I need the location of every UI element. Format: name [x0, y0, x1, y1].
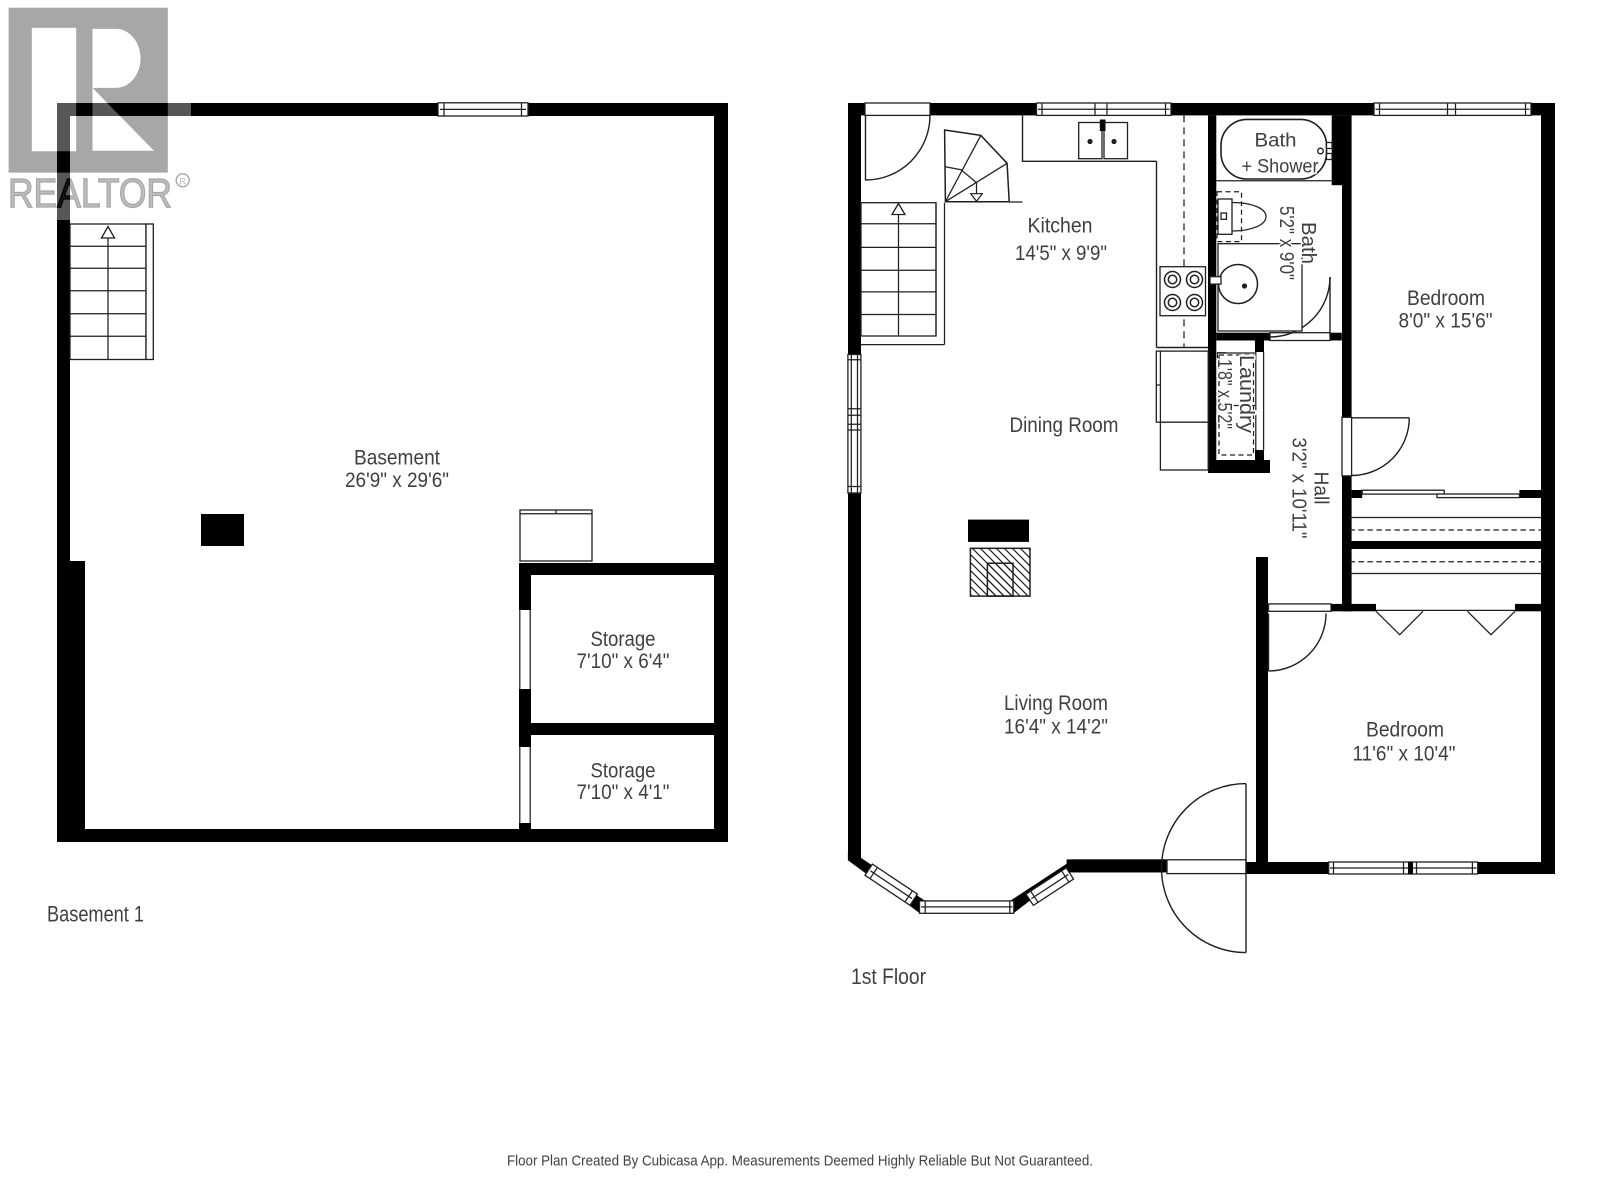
- svg-text:Kitchen: Kitchen: [1028, 214, 1093, 238]
- svg-text:Dining Room: Dining Room: [1010, 413, 1119, 437]
- svg-text:26'9" x 29'6": 26'9" x 29'6": [345, 468, 449, 492]
- svg-text:Bedroom: Bedroom: [1407, 286, 1485, 310]
- svg-text:Bath: Bath: [1297, 222, 1319, 264]
- svg-text:14'5" x 9'9": 14'5" x 9'9": [1015, 241, 1107, 265]
- svg-text:16'4" x 14'2": 16'4" x 14'2": [1004, 715, 1108, 739]
- svg-text:REALTOR: REALTOR: [8, 170, 172, 216]
- svg-text:7'10" x 6'4": 7'10" x 6'4": [577, 649, 670, 673]
- svg-text:R: R: [179, 176, 186, 187]
- svg-text:Bath: Bath: [1255, 130, 1297, 152]
- svg-text:3'2" x 10'11": 3'2" x 10'11": [1288, 438, 1310, 539]
- svg-text:8'0" x 15'6": 8'0" x 15'6": [1399, 309, 1493, 333]
- svg-text:1st Floor: 1st Floor: [851, 964, 926, 989]
- svg-text:5'2" x 9'0": 5'2" x 9'0": [1275, 206, 1297, 280]
- svg-text:Basement: Basement: [354, 446, 440, 470]
- svg-text:Storage: Storage: [591, 759, 656, 783]
- svg-text:Laundry: Laundry: [1235, 355, 1257, 433]
- svg-text:Bedroom: Bedroom: [1366, 718, 1444, 742]
- svg-text:Floor Plan Created By Cubicasa: Floor Plan Created By Cubicasa App. Meas…: [507, 1153, 1093, 1170]
- svg-text:Hall: Hall: [1310, 472, 1332, 505]
- svg-text:+ Shower: + Shower: [1242, 156, 1319, 178]
- svg-text:Storage: Storage: [591, 627, 656, 651]
- svg-text:7'10" x 4'1": 7'10" x 4'1": [577, 780, 670, 804]
- svg-text:Living Room: Living Room: [1004, 691, 1108, 715]
- svg-text:11'6" x 10'4": 11'6" x 10'4": [1353, 742, 1456, 766]
- svg-text:Basement 1: Basement 1: [47, 902, 144, 927]
- svg-text:1'8" x 5'2": 1'8" x 5'2": [1213, 359, 1235, 429]
